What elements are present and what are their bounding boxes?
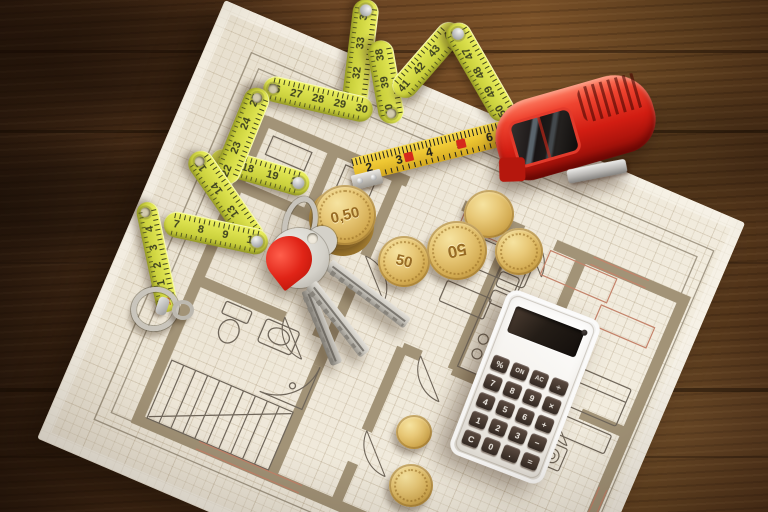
ruler-rivet — [450, 26, 466, 42]
house-keys — [255, 192, 415, 352]
calculator-key-7: 7 — [482, 373, 503, 393]
ruler-number: 4 — [145, 225, 157, 233]
calculator-key-8: 8 — [502, 380, 523, 400]
ruler-number: 24 — [239, 116, 254, 131]
ruler-number: 48 — [472, 64, 488, 80]
tape-red-mark — [403, 151, 414, 162]
ruler-number: 7 — [172, 219, 180, 231]
calculator-key-.: . — [500, 444, 521, 464]
tape-red-mark — [456, 138, 467, 149]
calculator-key-+: + — [534, 414, 555, 434]
ruler-number: 19 — [265, 169, 280, 183]
ruler-number: 3 — [149, 243, 161, 251]
tape-measure-blade-exit — [499, 157, 526, 182]
coin-on-wood — [389, 464, 433, 507]
calculator-key-1: 1 — [468, 410, 489, 430]
ruler-number: 33 — [356, 37, 368, 50]
calculator-key-AC: AC — [529, 369, 550, 389]
ruler-number: 41 — [396, 78, 412, 94]
coin-50-cent: 50 — [427, 221, 487, 280]
calculator-key-C: C — [461, 429, 482, 449]
ruler-number: 39 — [380, 75, 393, 89]
coin-rim — [500, 233, 538, 270]
calculator-key-ON: ON — [509, 362, 530, 382]
tape-number: 4 — [424, 144, 434, 159]
ruler-number: 8 — [197, 224, 205, 236]
calculator-key-3: 3 — [507, 425, 528, 445]
calculator-key-×: × — [541, 395, 562, 415]
ruler-number: 23 — [230, 140, 245, 155]
ruler-hole — [386, 108, 398, 120]
calculator-key-÷: ÷ — [548, 377, 569, 397]
coin-plain — [495, 228, 543, 275]
ruler-number: 30 — [354, 102, 368, 115]
calculator-display — [507, 306, 585, 358]
calculator-key-%: % — [489, 354, 510, 374]
calculator-key-2: 2 — [488, 418, 509, 438]
ruler-number: 29 — [333, 97, 347, 110]
ruler-number: 9 — [221, 229, 229, 241]
ruler-number: 32 — [352, 66, 364, 79]
ruler-number: 14 — [210, 179, 226, 195]
ruler-number: 1 — [156, 279, 168, 287]
photo-canvas: 3433323126272829303839404142434446474849… — [0, 0, 768, 512]
ruler-rivet — [359, 4, 372, 17]
ruler-number: 28 — [311, 92, 325, 105]
calculator-key-−: − — [527, 433, 548, 453]
coin-rim — [394, 469, 428, 502]
calculator-key-4: 4 — [475, 391, 496, 411]
calculator-key-6: 6 — [514, 406, 535, 426]
tape-hook-rivet — [370, 174, 377, 181]
calculator-key-5: 5 — [495, 399, 516, 419]
ruler-number: 38 — [375, 47, 388, 61]
calculator-key-0: 0 — [480, 436, 501, 456]
calculator-key-=: = — [520, 451, 541, 471]
ruler-number: 47 — [461, 45, 477, 61]
ruler-number: 27 — [289, 87, 303, 100]
ruler-number: 42 — [411, 60, 427, 76]
calculator-key-9: 9 — [521, 388, 542, 408]
keychain-small-ring — [172, 300, 194, 320]
key-hole — [307, 233, 318, 244]
ruler-number: 43 — [426, 43, 442, 59]
coin-under-calculator — [396, 415, 432, 449]
ruler-number: 2 — [153, 261, 165, 269]
ruler-number: 13 — [226, 202, 242, 218]
